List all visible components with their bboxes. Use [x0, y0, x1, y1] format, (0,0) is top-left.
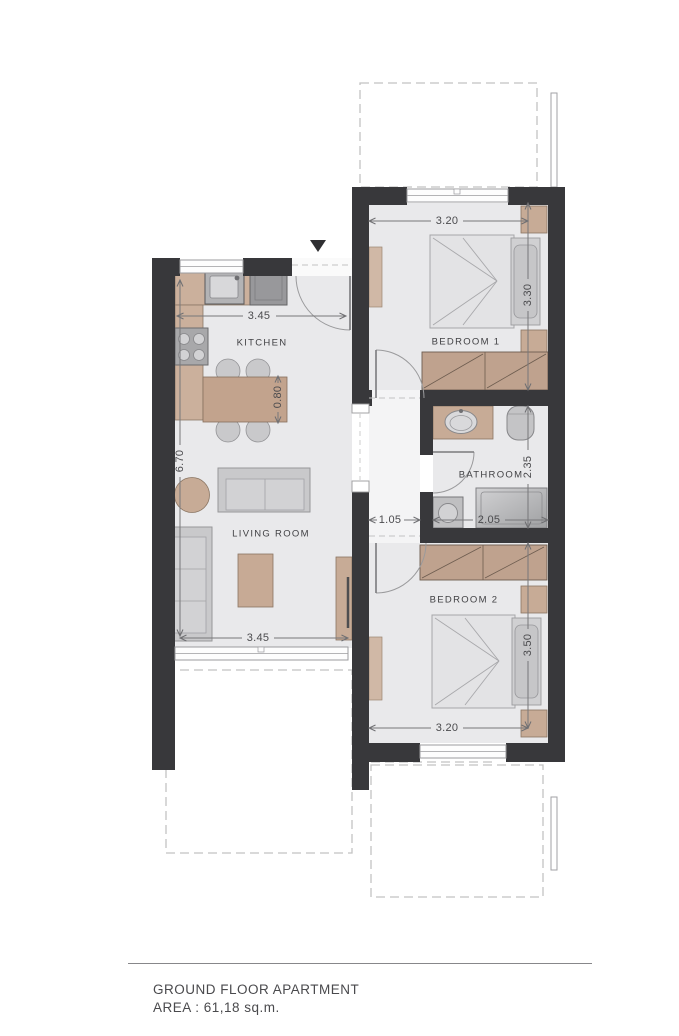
dim-bedroom2-depth: 3.50	[522, 634, 534, 657]
wall-top-mid	[243, 258, 292, 276]
nightstand-icon	[521, 206, 547, 233]
nightstand-icon	[521, 586, 547, 613]
bedroom2-label: BEDROOM 2	[430, 595, 499, 606]
wall-bathroom-top	[420, 390, 548, 406]
thin-wall-top	[551, 93, 557, 187]
nightstand-icon	[521, 710, 547, 737]
terrace-bottom-left-outline	[166, 670, 352, 853]
terrace-bottom-right-outline	[371, 765, 543, 897]
living-room-window	[175, 647, 348, 660]
bedroom2-window	[420, 745, 506, 758]
wall-mid-upper	[352, 187, 369, 404]
dim-kitchen-width: 3.45	[248, 310, 271, 322]
plan-title: GROUND FLOOR APARTMENT	[153, 982, 359, 997]
wall-bathroom-left-upper	[420, 390, 433, 455]
wall-bathroom-bottom	[420, 528, 548, 543]
tv-unit-icon	[336, 557, 352, 640]
plan-area-label: AREA : 61,18 sq.m.	[153, 1000, 280, 1015]
floor-plan-drawing	[0, 0, 679, 1036]
kitchen-window	[180, 260, 243, 273]
radiator-bedroom2-icon	[369, 637, 382, 700]
dim-bedroom1-width: 3.20	[436, 215, 459, 227]
dim-hall-width: 1.05	[379, 514, 402, 526]
radiator-bedroom1-icon	[369, 247, 382, 307]
wall-right-exterior	[548, 187, 565, 762]
kitchen-label: KITCHEN	[237, 338, 288, 349]
bathroom-label: BATHROOM	[459, 470, 524, 481]
footer-divider	[128, 963, 592, 964]
dim-living-width: 3.45	[247, 632, 270, 644]
wall-left-exterior	[152, 258, 175, 770]
kitchen-sink-icon	[205, 271, 244, 304]
bedroom1-label: BEDROOM 1	[432, 337, 501, 348]
floor-plan-page: KITCHEN LIVING ROOM BATHROOM BEDROOM 1 B…	[0, 0, 679, 1036]
thin-wall-bottom	[551, 797, 557, 870]
dim-bedroom2-width: 3.20	[436, 722, 459, 734]
wall-bedroom2-bottom-left	[352, 743, 420, 762]
coffee-table-icon	[238, 554, 273, 607]
toilet-icon	[507, 406, 534, 440]
dim-bedroom1-depth: 3.30	[522, 284, 534, 307]
wardrobe-bedroom1-icon	[422, 352, 548, 390]
bedroom1-window	[407, 189, 508, 202]
wall-bedroom2-bottom-right	[506, 743, 565, 762]
living-room-label: LIVING ROOM	[232, 529, 310, 540]
bed2-icon	[432, 615, 541, 708]
wall-bedroom1-top-left	[352, 187, 407, 205]
dim-bath-depth: 2.35	[522, 456, 534, 479]
washing-machine-icon	[433, 497, 463, 528]
entrance-arrow-icon	[310, 240, 326, 252]
dim-island-depth: 0.80	[272, 386, 284, 409]
terrace-top-outline	[360, 83, 537, 187]
sofa-top-icon	[218, 468, 310, 512]
dim-kitchen-living-length: 6.70	[174, 450, 186, 473]
bed1-icon	[430, 235, 540, 328]
wall-top-left	[152, 258, 180, 276]
dim-bath-width: 2.05	[478, 514, 501, 526]
vanity-sink-icon	[433, 406, 493, 439]
